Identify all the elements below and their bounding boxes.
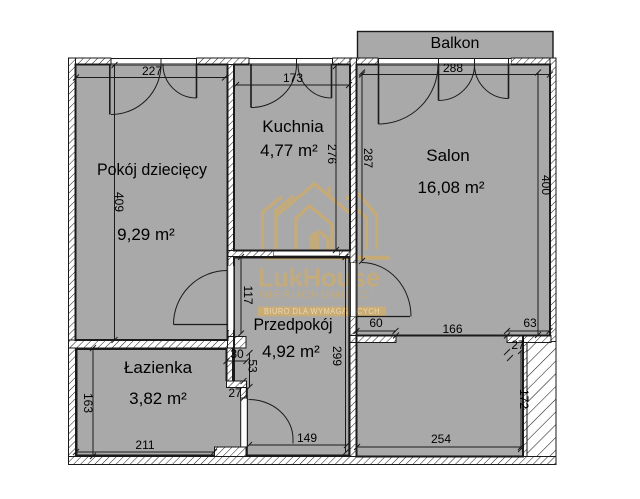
svg-text:288: 288 [443, 61, 463, 75]
svg-text:LukHouse: LukHouse [258, 263, 380, 293]
svg-text:Kuchnia: Kuchnia [262, 117, 324, 136]
svg-text:4,92 m²: 4,92 m² [262, 342, 320, 361]
svg-text:30: 30 [230, 347, 244, 361]
svg-text:400: 400 [539, 175, 553, 195]
svg-text:276: 276 [325, 144, 339, 164]
svg-text:409: 409 [112, 192, 126, 212]
svg-text:60: 60 [369, 316, 383, 330]
svg-text:163: 163 [81, 393, 95, 413]
svg-text:287: 287 [361, 148, 375, 168]
svg-text:27: 27 [228, 386, 242, 400]
svg-text:166: 166 [442, 322, 462, 336]
svg-text:63: 63 [523, 316, 537, 330]
svg-text:173: 173 [283, 71, 303, 85]
svg-text:Przedpokój: Przedpokój [254, 315, 333, 334]
svg-text:Pokój dziecięcy: Pokój dziecięcy [97, 160, 207, 179]
svg-text:149: 149 [297, 431, 317, 445]
svg-text:53: 53 [246, 359, 260, 373]
svg-text:Balkon: Balkon [431, 35, 480, 52]
svg-text:9,29 m²: 9,29 m² [117, 225, 175, 244]
svg-text:211: 211 [135, 438, 154, 452]
svg-text:3,82 m²: 3,82 m² [129, 389, 187, 408]
svg-text:27: 27 [511, 338, 525, 352]
svg-text:227: 227 [142, 64, 162, 78]
svg-text:4,77 m²: 4,77 m² [260, 141, 318, 160]
svg-text:16,08 m²: 16,08 m² [417, 178, 484, 197]
svg-text:117: 117 [241, 285, 255, 304]
svg-text:Salon: Salon [426, 146, 469, 165]
svg-text:Łazienka: Łazienka [124, 358, 193, 377]
svg-text:299: 299 [330, 346, 344, 366]
svg-text:172: 172 [517, 389, 531, 409]
svg-text:254: 254 [431, 432, 451, 446]
